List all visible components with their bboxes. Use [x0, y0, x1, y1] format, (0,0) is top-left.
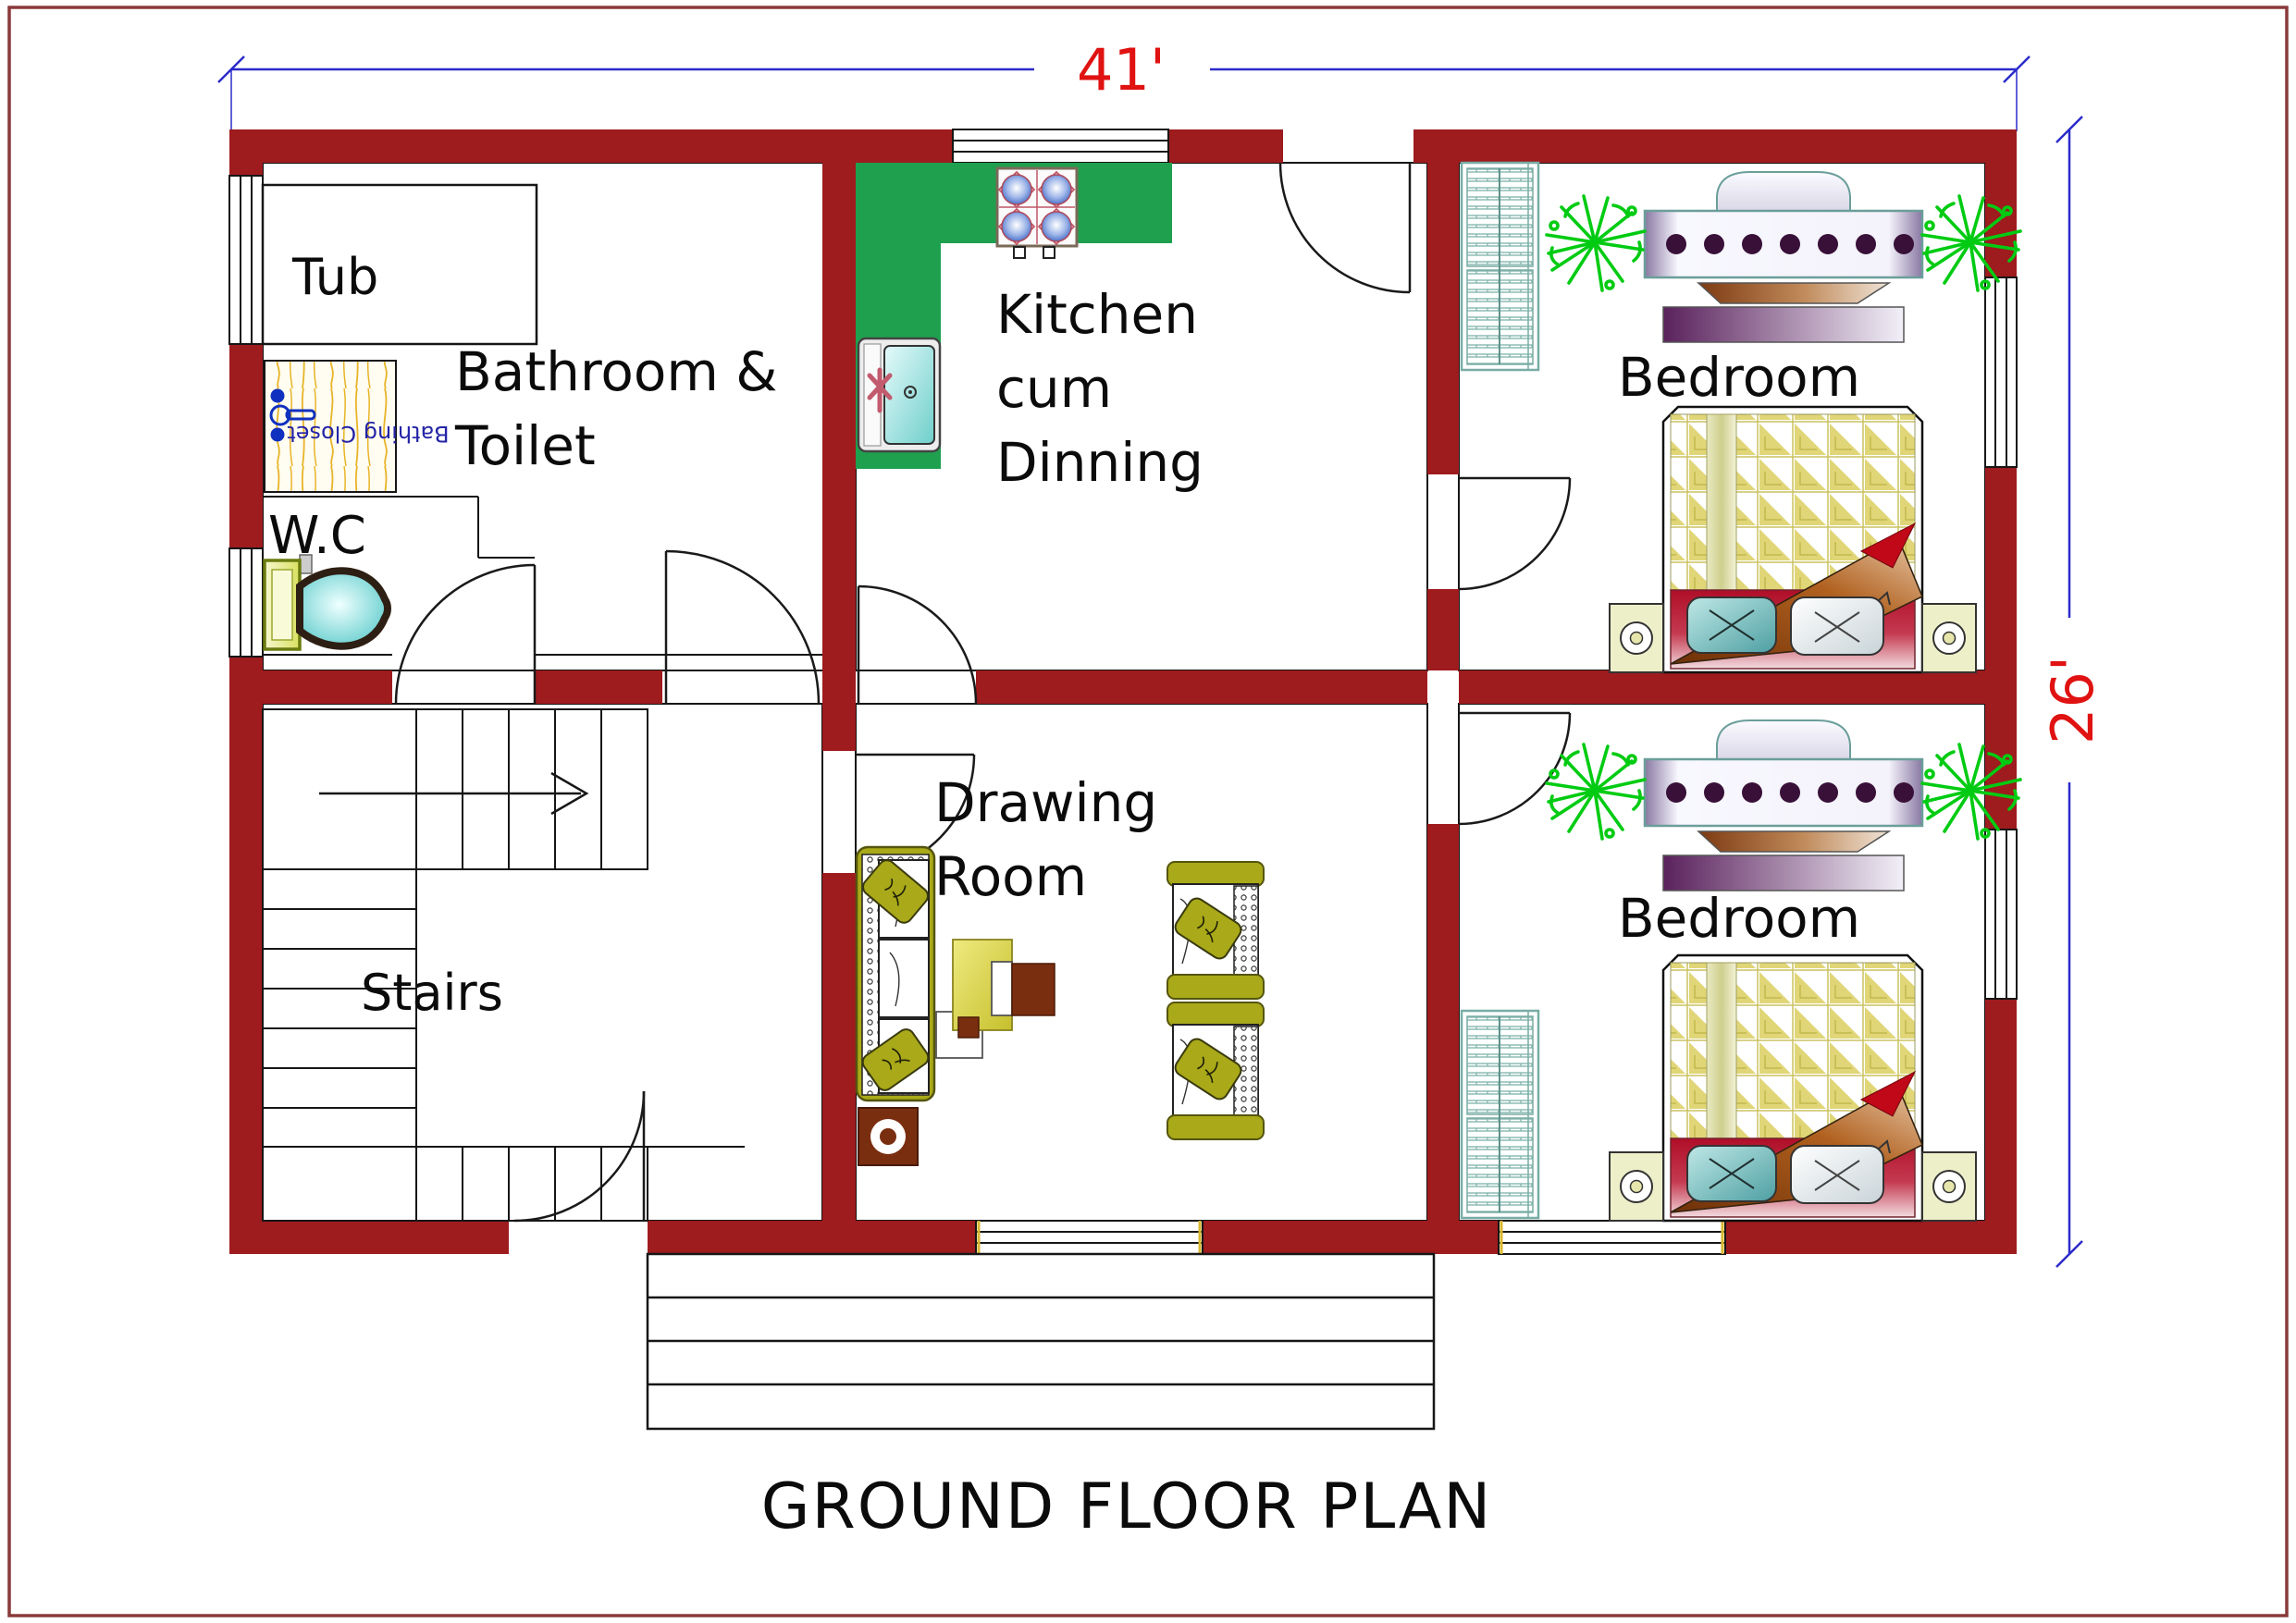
side-table	[858, 1108, 918, 1165]
height-dimension-label: 26'	[2039, 656, 2106, 744]
stove-icon	[997, 168, 1077, 258]
armchair-2	[1167, 1002, 1264, 1139]
window-tub	[229, 176, 263, 344]
kitchen-label-line1: Kitchen	[996, 283, 1198, 346]
drawing-room-label-line2: Room	[934, 845, 1087, 908]
drawing-room-label-line1: Drawing	[934, 771, 1157, 834]
floor-plan-canvas: 41' 26'	[0, 0, 2296, 1623]
kitchen-label-line2: cum	[996, 357, 1112, 420]
bathing-closet-label: Bathing Closet	[287, 421, 449, 447]
entry-steps	[648, 1254, 1434, 1429]
wardrobe-bottom	[1462, 1011, 1538, 1218]
plan-title: GROUND FLOOR PLAN	[761, 1470, 1492, 1543]
bedroom-bottom-label: Bedroom	[1618, 887, 1860, 950]
sink-icon	[858, 338, 940, 451]
floor-plan-page: 41' 26'	[0, 0, 2296, 1623]
window-bedroom2-bottom	[1499, 1221, 1725, 1254]
tub-label: Tub	[291, 248, 378, 306]
window-wc	[229, 548, 263, 657]
bedroom-top-label: Bedroom	[1618, 346, 1860, 409]
bed-top	[1610, 407, 1976, 672]
bathroom-label-line1: Bathroom &	[455, 340, 778, 403]
sofa	[857, 847, 934, 1100]
kitchen-label-line3: Dinning	[996, 431, 1204, 494]
bathroom-label-line2: Toilet	[454, 414, 596, 477]
window-bedroom-bottom	[1985, 830, 2017, 999]
stairs-label: Stairs	[361, 964, 503, 1022]
window-drawing-bottom	[976, 1221, 1203, 1254]
wc-label: W.C	[268, 506, 366, 566]
window-kitchen	[953, 129, 1168, 163]
width-dimension-label: 41'	[1077, 36, 1166, 104]
window-bedroom-top	[1985, 277, 2017, 467]
armchair-1	[1167, 862, 1264, 999]
bed-bottom	[1610, 955, 1976, 1221]
wardrobe-top	[1462, 163, 1538, 370]
